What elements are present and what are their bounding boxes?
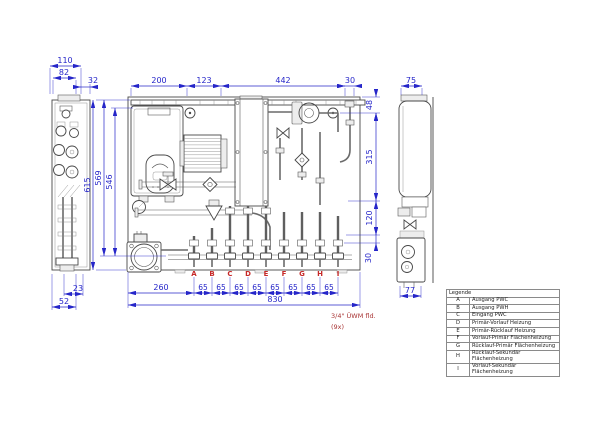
dim-pitch-1: 65 (198, 283, 208, 292)
legend-key: H (447, 350, 470, 363)
dim-left-view-inner: 82 (59, 68, 69, 77)
legend-header-row: Legende (447, 290, 560, 298)
legend-row-b: B Ausgang PWH (447, 305, 560, 313)
legend-key: E (447, 327, 470, 335)
dim-right-2: 315 (365, 149, 374, 164)
dim-right-4: 30 (364, 253, 373, 263)
dim-top-3: 442 (275, 76, 290, 85)
legend-row-f: F Vorlauf-Primär Flächenheizung (447, 335, 560, 343)
dim-left-bottom-offset: 23 (73, 284, 83, 293)
legend-table: Legende A Ausgang PWC B Ausgang PWH C Ei… (446, 289, 560, 377)
dim-pitch-3: 65 (234, 283, 244, 292)
fitting-note: 3/4" ÜWM fld. (9x) (331, 311, 376, 331)
connection-labels: A B C D E F G H I (191, 270, 339, 278)
connection-label-f: F (282, 270, 287, 278)
legend-row-i: I Vorlauf-Sekundär Flächenheizung (447, 363, 560, 376)
connection-label-e: E (264, 270, 269, 278)
legend-row-e: E Primär-Rücklauf Heizung (447, 327, 560, 335)
legend-title: Legende (447, 290, 560, 298)
dim-top-2: 123 (196, 76, 211, 85)
legend-row-c: C Eingang PWC (447, 312, 560, 320)
front-view (127, 96, 365, 273)
dim-bottom-offset: 260 (153, 283, 168, 292)
dim-pitch-5: 65 (270, 283, 280, 292)
dim-left-view-total: 110 (57, 56, 72, 65)
dim-bottom-total: 830 (267, 295, 282, 304)
dim-top-4: 30 (345, 76, 355, 85)
right-side-view (397, 95, 433, 288)
legend-desc: Vorlauf-Primär Flächenheizung (470, 335, 560, 343)
legend-row-g: G Rücklauf-Primär Flächenheizung (447, 343, 560, 351)
dim-pitch-4: 65 (252, 283, 262, 292)
legend-desc: Ausgang PWH (470, 305, 560, 313)
fitting-note-line2: (9x) (331, 323, 344, 331)
dim-right-view-top: 75 (406, 76, 416, 85)
legend-desc: Primär-Vorlauf Heizung (470, 320, 560, 328)
legend-row-d: D Primär-Vorlauf Heizung (447, 320, 560, 328)
legend-desc: Ausgang PWC (470, 297, 560, 305)
connection-label-c: C (227, 270, 232, 278)
connection-label-a: A (191, 270, 197, 278)
fitting-note-line1: 3/4" ÜWM fld. (331, 311, 376, 320)
legend-desc: Eingang PWC (470, 312, 560, 320)
legend-key: B (447, 305, 470, 313)
legend-desc: Primär-Rücklauf Heizung (470, 327, 560, 335)
connection-label-g: G (299, 270, 305, 278)
finned-heat-exchanger (180, 135, 227, 172)
dim-pitch-2: 65 (216, 283, 226, 292)
dim-top-1: 200 (151, 76, 166, 85)
dim-height-rail: 569 (94, 170, 103, 185)
connection-label-h: H (317, 270, 323, 278)
connection-label-d: D (245, 270, 251, 278)
dim-height-inner: 546 (105, 174, 114, 189)
legend-key: C (447, 312, 470, 320)
legend-row-a: A Ausgang PWC (447, 297, 560, 305)
dim-pitch-6: 65 (288, 283, 298, 292)
legend-key: D (447, 320, 470, 328)
dim-pitch-7: 65 (306, 283, 316, 292)
dim-height-total: 615 (83, 177, 92, 192)
legend-row-h: H Rücklauf-Sekundär Flächenheizung (447, 350, 560, 363)
connection-label-b: B (209, 270, 214, 278)
legend-key: F (447, 335, 470, 343)
dim-right-3: 120 (365, 210, 374, 225)
dim-left-bottom-width: 52 (59, 297, 69, 306)
connection-label-i: I (337, 270, 340, 278)
plate-heat-exchanger (235, 96, 268, 206)
legend-desc: Rücklauf-Sekundär Flächenheizung (470, 350, 560, 363)
dim-right-view-bottom: 77 (405, 286, 415, 295)
legend-desc: Rücklauf-Primär Flächenheizung (470, 343, 560, 351)
dim-right-1: 48 (365, 100, 374, 110)
dim-left-gap: 32 (88, 76, 98, 85)
legend-key: A (447, 297, 470, 305)
legend-key: I (447, 363, 470, 376)
dim-pitch-8: 65 (324, 283, 334, 292)
legend-desc: Vorlauf-Sekundär Flächenheizung (470, 363, 560, 376)
legend-key: G (447, 343, 470, 351)
